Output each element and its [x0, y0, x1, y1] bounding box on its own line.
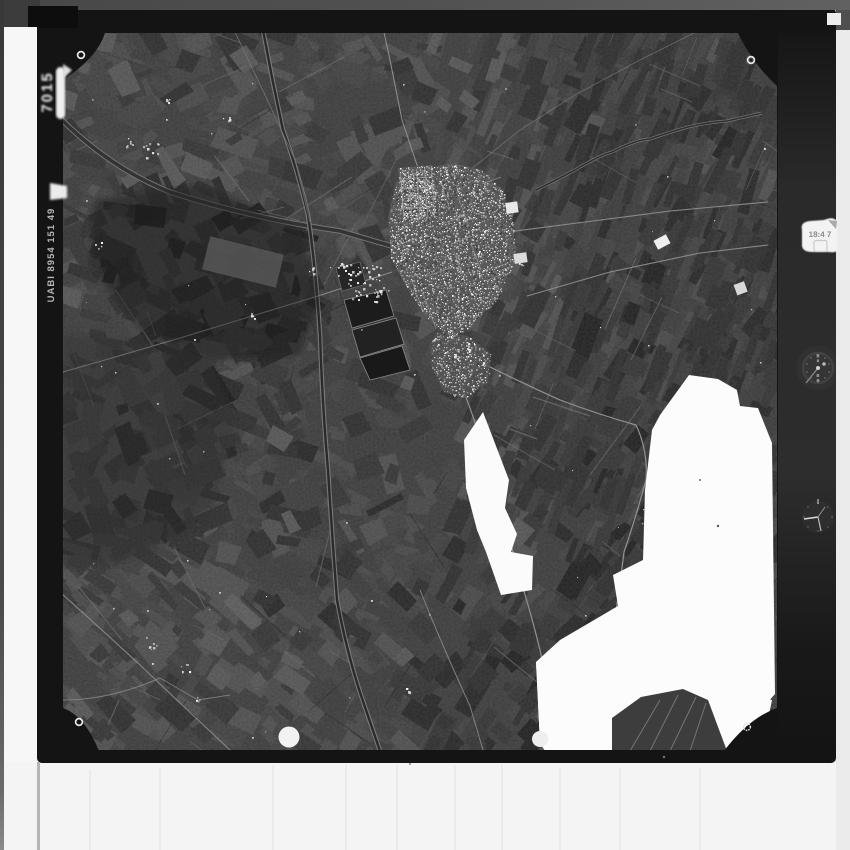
svg-text:18:4 7: 18:4 7	[809, 230, 832, 239]
svg-text:7015: 7015	[39, 71, 56, 112]
svg-text:UABI 8954 151 49: UABI 8954 151 49	[46, 208, 57, 303]
